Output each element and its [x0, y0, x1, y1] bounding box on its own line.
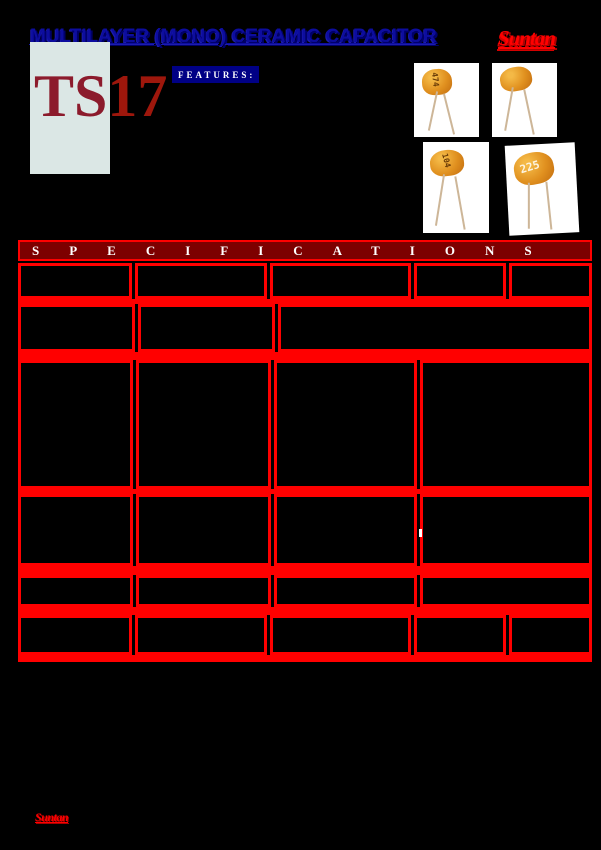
series-code: TS17 — [34, 66, 167, 126]
stray-mark — [419, 529, 422, 537]
spec-cell — [420, 360, 592, 489]
spec-row-4 — [18, 494, 592, 566]
spec-cell — [18, 360, 133, 489]
brand-logo: Suntan — [498, 26, 555, 51]
spec-cell — [18, 263, 132, 299]
spec-cell — [274, 494, 417, 566]
specifications-table: SPECIFICATIONS — [18, 240, 592, 662]
spec-row-1 — [18, 263, 592, 299]
spec-cell — [270, 615, 410, 655]
row-divider — [18, 352, 592, 360]
capacitor-lead — [545, 182, 552, 230]
spec-cell — [136, 575, 271, 607]
spec-cell — [18, 494, 133, 566]
spec-cell — [270, 263, 410, 299]
spec-cell — [135, 615, 268, 655]
spec-cell — [509, 615, 592, 655]
capacitor-lead — [528, 183, 530, 229]
spec-cell — [278, 304, 592, 352]
features-heading: FEATURES: — [172, 66, 259, 83]
row-divider — [18, 566, 592, 575]
spec-cell — [18, 575, 133, 607]
spec-row-5 — [18, 575, 592, 607]
spec-row-2 — [18, 304, 592, 352]
spec-row-3 — [18, 360, 592, 489]
capacitor-marking: 474 — [430, 72, 441, 87]
capacitor-lead — [435, 174, 445, 226]
datasheet-page: MULTILAYER (MONO) CERAMIC CAPACITOR Sunt… — [0, 0, 601, 850]
capacitor-lead — [428, 91, 438, 131]
capacitor-photo-1: 474 — [414, 63, 479, 137]
capacitor-photo-3: 104 — [423, 142, 489, 233]
footer-brand-logo: Suntan — [35, 810, 68, 825]
spec-cell — [138, 304, 275, 352]
capacitor-lead — [443, 93, 455, 134]
table-bottom-border — [18, 655, 592, 662]
series-number: 17 — [107, 63, 167, 129]
spec-cell — [136, 360, 271, 489]
spec-cell — [274, 360, 417, 489]
series-prefix: TS — [34, 63, 107, 129]
specifications-heading: SPECIFICATIONS — [18, 240, 592, 261]
capacitor-lead — [504, 87, 514, 131]
capacitor-photo-2 — [492, 63, 557, 137]
spec-cell — [18, 304, 135, 352]
spec-cell — [420, 575, 592, 607]
capacitor-photo-4: 225 — [505, 142, 580, 236]
spec-cell — [18, 615, 132, 655]
capacitor-lead — [454, 176, 465, 230]
spec-cell — [414, 263, 506, 299]
spec-cell — [509, 263, 592, 299]
row-divider — [18, 607, 592, 615]
spec-cell — [136, 494, 271, 566]
spec-cell — [414, 615, 506, 655]
capacitor-lead — [523, 89, 535, 134]
spec-cell — [274, 575, 417, 607]
spec-cell — [420, 494, 592, 566]
spec-row-6 — [18, 615, 592, 655]
spec-cell — [135, 263, 268, 299]
capacitor-body — [498, 64, 534, 93]
